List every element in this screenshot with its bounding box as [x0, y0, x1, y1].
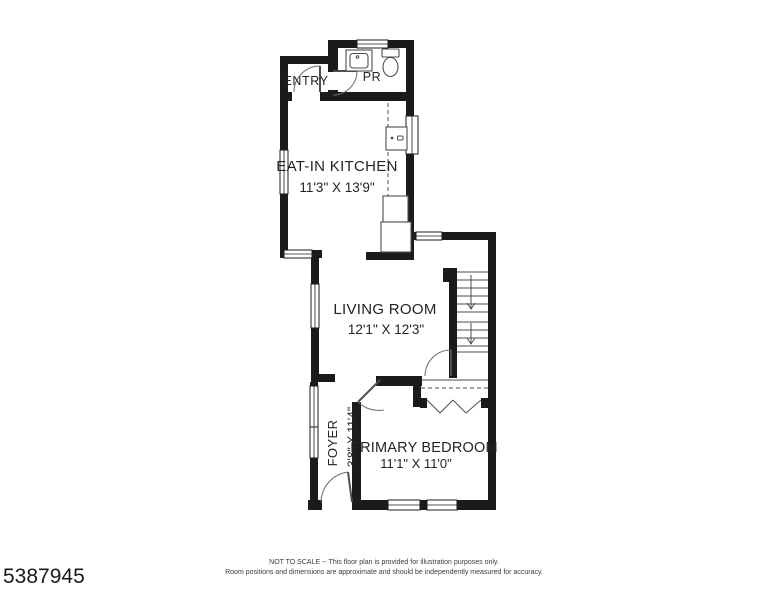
window [388, 500, 420, 510]
room-label-powder-room: PR [363, 70, 382, 84]
disclaimer: NOT TO SCALE -- This floor plan is provi… [0, 558, 768, 578]
disclaimer-line-1: NOT TO SCALE -- This floor plan is provi… [0, 558, 768, 568]
room-label-entry: ENTRY [283, 74, 328, 88]
stairs-down-arrow [467, 323, 475, 344]
room-label-primary-bedroom: PRIMARY BEDROOM [350, 440, 498, 456]
room-dims-foyer: 3'8" X 11'4" [345, 407, 359, 467]
stairs-icon [457, 272, 488, 352]
floor-plan-page: ENTRY PR EAT-IN KITCHEN 11'3" X 13'9" LI… [0, 0, 768, 594]
stair-hall-door [425, 350, 451, 376]
toilet-icon [382, 49, 399, 77]
room-dims-kitchen: 11'3" X 13'9" [299, 180, 374, 195]
room-label-kitchen: EAT-IN KITCHEN [276, 158, 397, 175]
window [311, 284, 319, 328]
floor-plan: ENTRY PR EAT-IN KITCHEN 11'3" X 13'9" LI… [0, 0, 768, 594]
room-dims-living-room: 12'1" X 12'3" [348, 322, 425, 337]
front-door [321, 472, 352, 502]
room-label-living-room: LIVING ROOM [333, 301, 436, 318]
window [284, 250, 312, 258]
window [310, 427, 318, 458]
sink-icon [346, 50, 372, 71]
stove-icon [386, 127, 407, 150]
window [427, 500, 457, 510]
window [406, 116, 418, 154]
room-label-foyer: FOYER [325, 420, 340, 467]
disclaimer-line-2: Room positions and dimensions are approx… [0, 568, 768, 578]
room-dims-primary-bedroom: 11'1" X 11'0" [380, 456, 452, 471]
window [310, 386, 318, 427]
window [416, 232, 442, 240]
window [357, 40, 388, 48]
closet-bifold-icon [421, 380, 488, 413]
